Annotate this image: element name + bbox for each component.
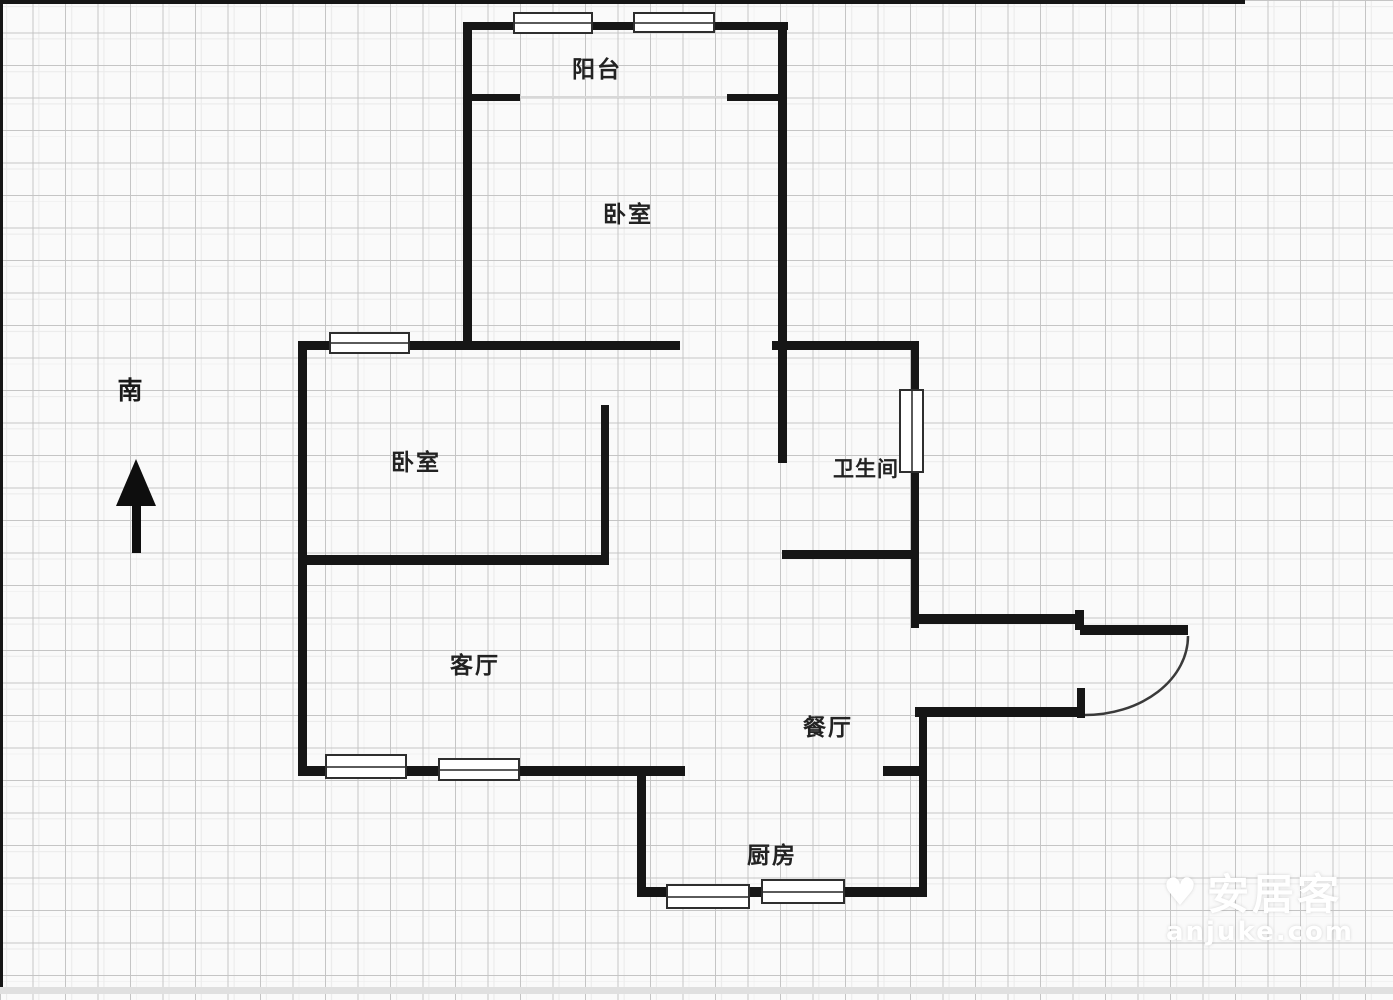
heart-logo-icon: ♥ [1163, 873, 1200, 911]
scan-edge-left [0, 0, 3, 990]
floor-plan-canvas: 阳台 卧室 卧室 卫生间 客厅 餐厅 厨房 南 ♥ 安居客 anjuke.com [0, 0, 1393, 1000]
watermark-brand: ♥ 安居客 [1163, 861, 1342, 922]
room-label-bedroom-left: 卧室 [391, 443, 441, 477]
wall-bathroom-bottom [782, 550, 919, 559]
wall-upper-right [778, 22, 787, 463]
wall-balcony-top [463, 22, 788, 30]
wall-kitchen-left [637, 766, 646, 897]
wall-bedroom-left-bottom [298, 555, 608, 565]
window-balcony-1 [513, 12, 593, 34]
window-bathroom [899, 389, 924, 473]
room-label-bathroom: 卫生间 [833, 453, 899, 483]
up-arrow-icon [116, 459, 156, 506]
window-kitchen-1 [666, 884, 750, 909]
window-living-2 [438, 758, 520, 781]
balcony-door-track [520, 96, 727, 98]
wall-right-lower [919, 707, 927, 897]
scan-edge-top [0, 0, 1245, 4]
entry-door-jamb-bottom [1077, 688, 1085, 718]
window-balcony-2 [633, 12, 715, 33]
watermark-domain: anjuke.com [1166, 917, 1352, 947]
wall-upper-left [463, 22, 472, 349]
wall-bedroom-left-right [601, 405, 609, 565]
watermark-brand-text: 安居客 [1207, 861, 1342, 922]
wall-balcony-sill-right [727, 94, 783, 101]
wall-entry-corridor-top [915, 614, 1080, 624]
room-label-balcony: 阳台 [572, 50, 622, 84]
window-living-1 [325, 754, 407, 779]
window-kitchen-2 [761, 879, 845, 904]
entry-door-leaf [1080, 625, 1188, 635]
scan-edge-bottom [0, 987, 1393, 994]
compass-south-label: 南 [117, 371, 142, 407]
wall-entry-corridor-bottom [915, 707, 1085, 717]
room-label-bedroom-top: 卧室 [603, 195, 653, 229]
room-label-dining-room: 餐厅 [803, 708, 853, 742]
room-label-living-room: 客厅 [450, 646, 500, 680]
wall-balcony-sill-left [466, 94, 520, 101]
wall-dining-stub [883, 766, 921, 776]
room-label-kitchen: 厨房 [747, 836, 797, 870]
entry-door-arc [0, 0, 1393, 1000]
wall-main-horizontal-right [772, 341, 919, 350]
wall-bathroom-right [911, 341, 919, 628]
window-bedroom-left [329, 332, 410, 354]
up-arrow-stem [132, 502, 141, 553]
